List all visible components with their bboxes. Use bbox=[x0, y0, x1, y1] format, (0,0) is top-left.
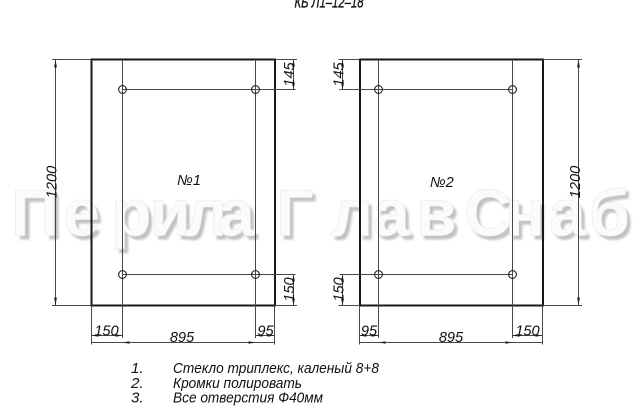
svg-text:1200: 1200 bbox=[44, 166, 60, 198]
svg-text:1200: 1200 bbox=[568, 166, 584, 198]
svg-text:150: 150 bbox=[515, 323, 539, 339]
svg-text:КБ Л1–12–18: КБ Л1–12–18 bbox=[295, 0, 364, 12]
svg-text:150: 150 bbox=[332, 277, 348, 301]
svg-text:3.: 3. bbox=[131, 390, 144, 407]
svg-text:ПерилаГлавСнаб: ПерилаГлавСнаб bbox=[11, 176, 630, 250]
svg-text:95: 95 bbox=[361, 323, 378, 339]
svg-text:150: 150 bbox=[282, 277, 298, 301]
svg-text:№1: №1 bbox=[177, 173, 201, 189]
svg-text:145: 145 bbox=[332, 61, 348, 86]
svg-text:895: 895 bbox=[439, 330, 464, 346]
svg-text:№2: №2 bbox=[430, 175, 454, 191]
svg-text:145: 145 bbox=[282, 61, 298, 86]
svg-text:895: 895 bbox=[170, 330, 195, 346]
svg-text:Все отверстия Ф40мм: Все отверстия Ф40мм bbox=[173, 390, 323, 407]
svg-text:150: 150 bbox=[94, 323, 118, 339]
svg-text:95: 95 bbox=[257, 323, 274, 339]
